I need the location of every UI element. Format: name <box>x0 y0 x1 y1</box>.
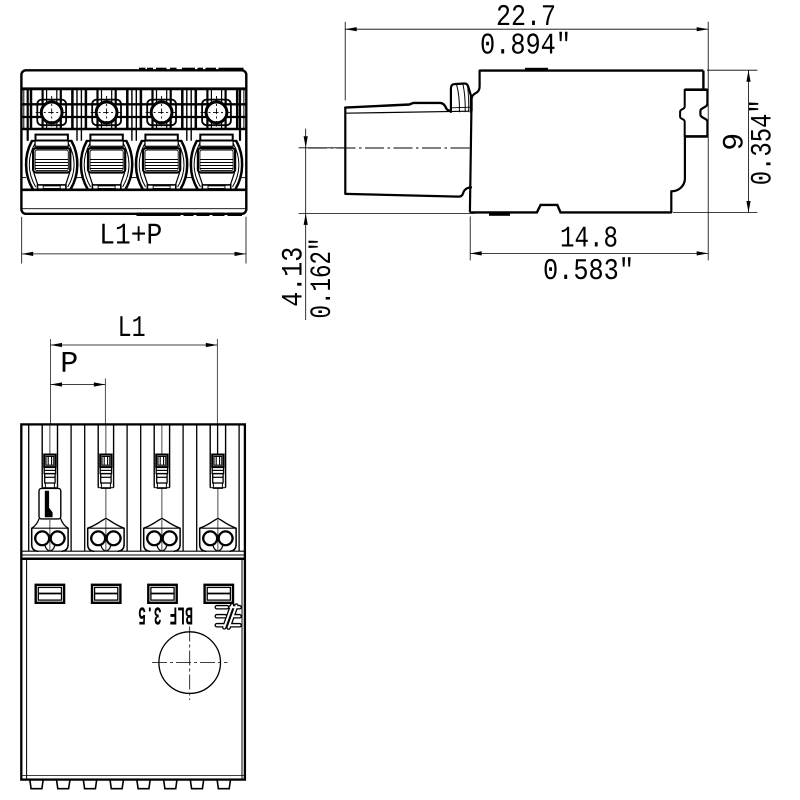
svg-text:L1: L1 <box>118 312 146 346</box>
svg-text:0.583″: 0.583″ <box>543 255 634 289</box>
svg-text:BLF 3.5: BLF 3.5 <box>138 599 193 629</box>
svg-text:14.8: 14.8 <box>560 222 618 256</box>
svg-text:0.894″: 0.894″ <box>480 29 571 63</box>
svg-text:0.354″: 0.354″ <box>747 99 781 185</box>
svg-text:0.162″: 0.162″ <box>306 238 340 319</box>
svg-text:P: P <box>60 348 78 382</box>
svg-text:L1+P: L1+P <box>99 219 162 253</box>
